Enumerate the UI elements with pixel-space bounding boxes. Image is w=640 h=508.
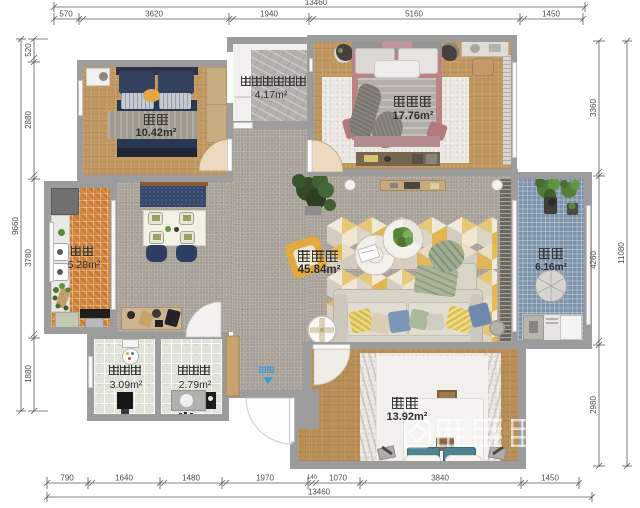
svg-text:140: 140 bbox=[307, 475, 318, 481]
svg-text:520: 520 bbox=[24, 43, 33, 57]
svg-text:1970: 1970 bbox=[256, 474, 274, 483]
svg-text:1480: 1480 bbox=[182, 474, 200, 483]
svg-text:1070: 1070 bbox=[329, 474, 347, 483]
svg-text:3780: 3780 bbox=[24, 249, 33, 267]
svg-text:1450: 1450 bbox=[541, 474, 559, 483]
svg-text:790: 790 bbox=[60, 474, 74, 483]
svg-text:2980: 2980 bbox=[589, 396, 598, 414]
svg-text:3620: 3620 bbox=[145, 10, 163, 19]
svg-text:9660: 9660 bbox=[11, 217, 20, 235]
svg-text:570: 570 bbox=[59, 10, 73, 19]
svg-text:4260: 4260 bbox=[589, 251, 598, 269]
svg-text:1450: 1450 bbox=[542, 10, 560, 19]
svg-text:2880: 2880 bbox=[24, 111, 33, 129]
svg-text:13460: 13460 bbox=[305, 0, 328, 7]
svg-text:3840: 3840 bbox=[431, 474, 449, 483]
svg-text:1940: 1940 bbox=[260, 10, 278, 19]
svg-text:13460: 13460 bbox=[308, 488, 331, 497]
svg-text:5160: 5160 bbox=[405, 10, 423, 19]
svg-text:11080: 11080 bbox=[617, 242, 626, 264]
svg-text:3360: 3360 bbox=[589, 99, 598, 117]
svg-text:1640: 1640 bbox=[115, 474, 133, 483]
svg-text:1880: 1880 bbox=[24, 365, 33, 383]
